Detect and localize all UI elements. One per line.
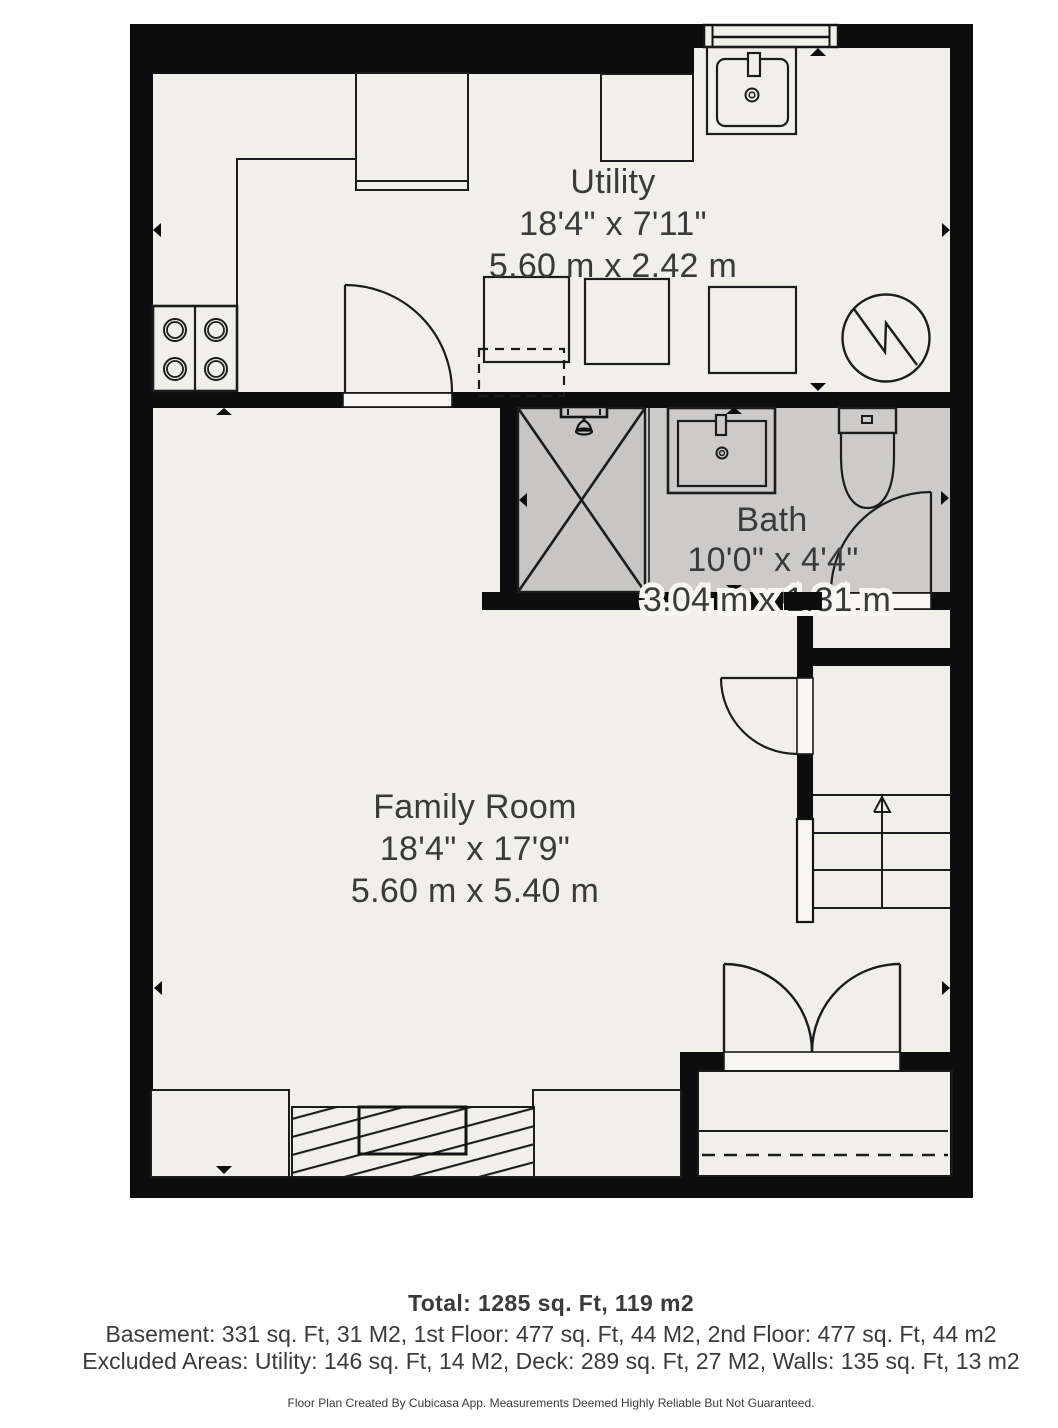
svg-text:18'4" x 17'9": 18'4" x 17'9": [380, 830, 570, 868]
svg-text:18'4" x 7'11": 18'4" x 7'11": [519, 205, 707, 243]
svg-text:Bath: Bath: [736, 501, 807, 539]
svg-text:Utility: Utility: [570, 163, 655, 201]
svg-text:10'0" x 4'4": 10'0" x 4'4": [687, 541, 858, 579]
svg-text:Family Room: Family Room: [373, 788, 577, 826]
svg-text:Excluded Areas: Utility: 146 s: Excluded Areas: Utility: 146 sq. Ft, 14 …: [82, 1348, 1019, 1374]
svg-text:3.04 m x 1.31 m: 3.04 m x 1.31 m: [643, 581, 891, 619]
svg-text:5.60 m x 2.42 m: 5.60 m x 2.42 m: [489, 247, 737, 285]
svg-text:Total: 1285 sq. Ft, 119 m2: Total: 1285 sq. Ft, 119 m2: [408, 1290, 694, 1316]
svg-text:Basement: 331 sq. Ft, 31 M2, 1: Basement: 331 sq. Ft, 31 M2, 1st Floor: …: [105, 1321, 996, 1347]
svg-text:5.60 m x 5.40 m: 5.60 m x 5.40 m: [351, 872, 599, 910]
svg-text:Floor Plan Created By Cubicasa: Floor Plan Created By Cubicasa App. Meas…: [288, 1396, 815, 1410]
